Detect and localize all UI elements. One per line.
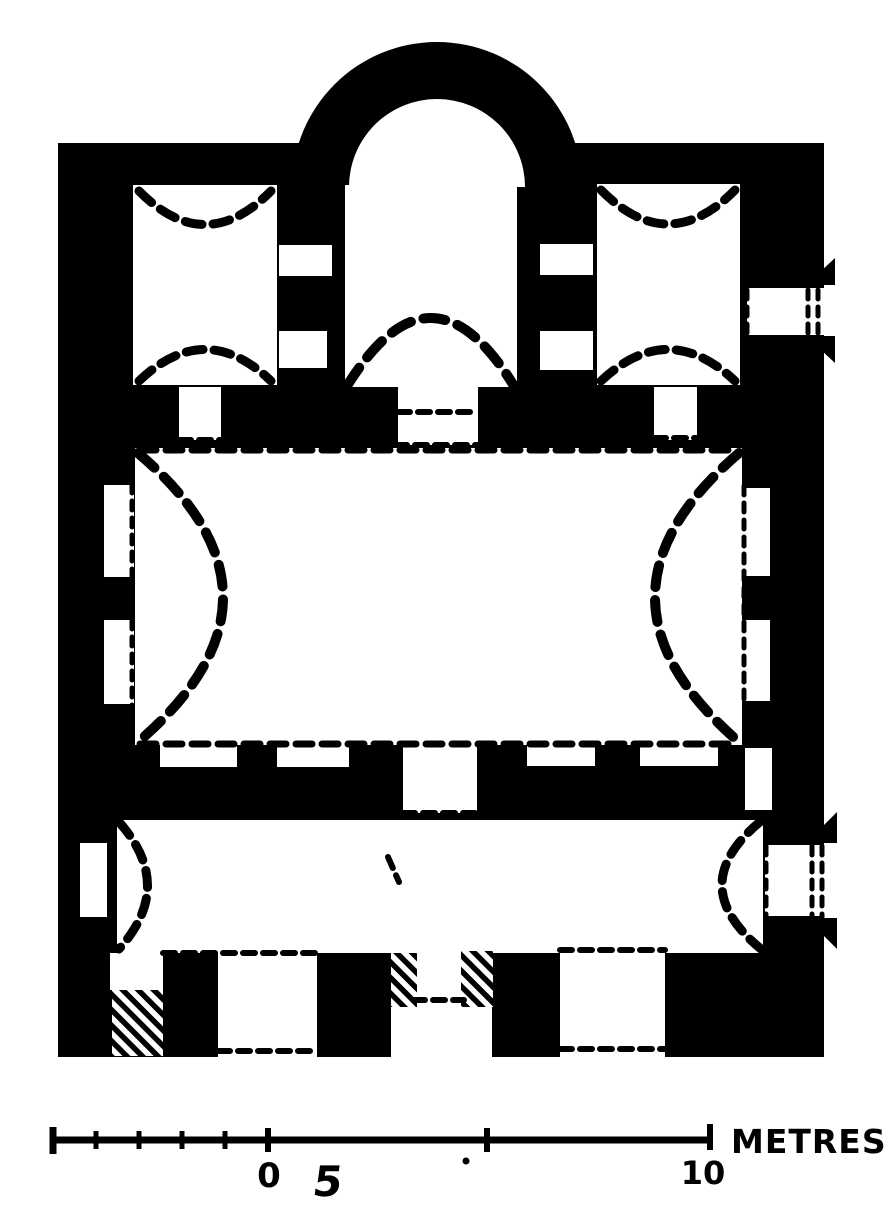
scale-label-0: 0	[257, 1156, 281, 1196]
scale-label-10: 10	[681, 1154, 726, 1192]
hatched-block-southwest	[112, 990, 163, 1056]
niche-naos-west-north	[104, 485, 134, 577]
recess-east-wall-south	[745, 748, 772, 810]
narthex-southwest-floor	[110, 953, 163, 990]
door-south-east	[560, 950, 665, 1057]
recess-naos-narthex-3	[527, 745, 595, 766]
door-diakonikon-naos	[654, 387, 697, 440]
diakonikon-room	[597, 184, 740, 385]
opening-bema-diakonikon-north	[540, 244, 593, 275]
recess-naos-narthex-4	[640, 745, 718, 766]
door-prothesis-naos	[179, 387, 221, 440]
prothesis-room	[133, 185, 277, 385]
opening-prothesis-bema-north	[279, 245, 332, 276]
stray-ink-dot	[463, 1158, 470, 1165]
niche-narthex-west	[80, 843, 107, 917]
recess-naos-narthex-1	[160, 745, 237, 767]
scanned-plan-page: 5 0 5 10 METRES	[0, 0, 891, 1210]
floor-plan-figure: 5 0 5 10 METRES	[0, 0, 891, 1210]
scale-unit-label: METRES	[731, 1122, 887, 1161]
building-plan	[58, 42, 837, 1057]
door-bema-naos	[398, 387, 478, 445]
opening-bema-diakonikon-south	[540, 331, 593, 370]
recess-naos-narthex-2	[277, 745, 349, 767]
narthex-hall	[117, 820, 763, 953]
porch-south-central	[391, 1007, 492, 1057]
door-south-west	[218, 953, 317, 1057]
opening-prothesis-bema-south	[279, 331, 327, 368]
room-interiors	[117, 184, 763, 953]
scale-label-5: 5	[310, 1157, 346, 1206]
door-naos-narthex	[403, 745, 477, 813]
scale-bar: 5 0 5 10 METRES	[0, 1122, 887, 1206]
